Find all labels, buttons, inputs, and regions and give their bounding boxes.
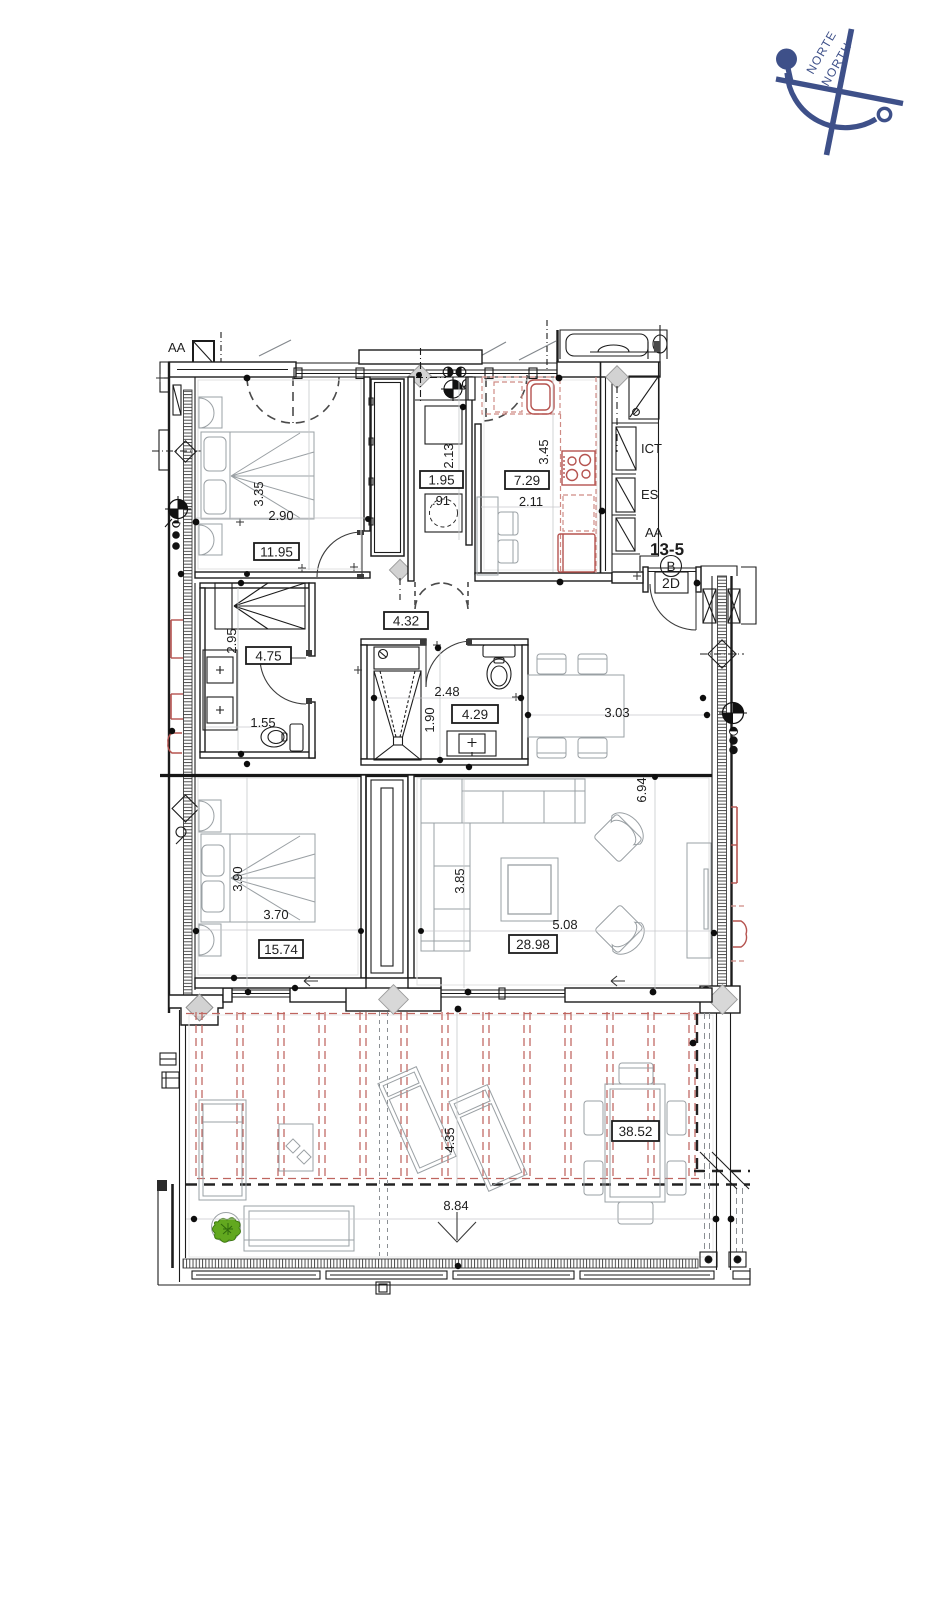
svg-text:15.74: 15.74 [264, 942, 298, 957]
svg-text:ES: ES [641, 487, 659, 502]
svg-text:3.03: 3.03 [604, 705, 629, 720]
svg-text:3.90: 3.90 [230, 866, 245, 891]
svg-text:6.94: 6.94 [634, 777, 649, 802]
svg-text:4.29: 4.29 [462, 707, 488, 722]
svg-text:38.52: 38.52 [619, 1124, 653, 1139]
svg-text:AA: AA [168, 340, 186, 355]
svg-text:4.35: 4.35 [442, 1127, 457, 1152]
svg-text:2.48: 2.48 [434, 684, 459, 699]
svg-text:5.08: 5.08 [552, 917, 577, 932]
svg-text:1.90: 1.90 [422, 707, 437, 732]
svg-text:AA: AA [645, 525, 663, 540]
svg-text:2D: 2D [662, 575, 680, 591]
svg-text:ICT: ICT [641, 441, 662, 456]
svg-text:1.95: 1.95 [428, 473, 454, 488]
svg-text:4.32: 4.32 [393, 614, 419, 629]
svg-text:2.11: 2.11 [519, 494, 543, 509]
svg-text:8.84: 8.84 [443, 1198, 468, 1213]
svg-text:3.35: 3.35 [251, 481, 266, 506]
svg-text:.91: .91 [432, 493, 450, 508]
svg-text:3.70: 3.70 [263, 907, 288, 922]
svg-text:7.29: 7.29 [514, 473, 540, 488]
svg-text:1.55: 1.55 [250, 715, 275, 730]
svg-text:2.90: 2.90 [268, 508, 293, 523]
svg-text:2.95: 2.95 [224, 628, 239, 653]
svg-text:28.98: 28.98 [516, 937, 550, 952]
svg-text:3.45: 3.45 [536, 439, 551, 464]
svg-text:3.85: 3.85 [452, 868, 467, 893]
svg-text:4.75: 4.75 [255, 649, 281, 664]
svg-text:11.95: 11.95 [260, 545, 293, 560]
svg-text:2.13: 2.13 [441, 443, 456, 468]
